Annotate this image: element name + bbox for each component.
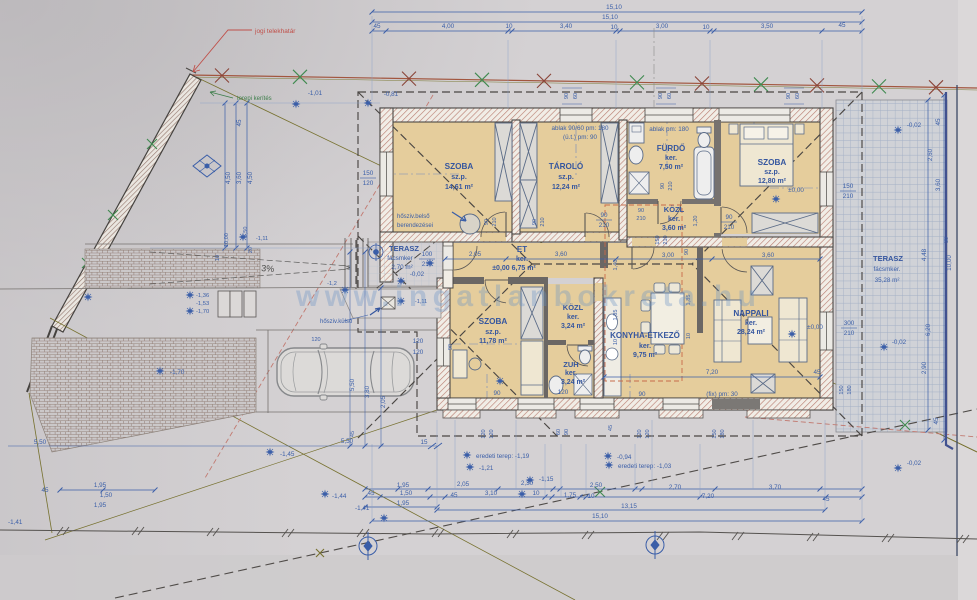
svg-text:(fix) pm: 30: (fix) pm: 30 — [706, 391, 738, 398]
svg-text:180: 180 — [847, 385, 853, 394]
svg-text:90: 90 — [725, 214, 733, 221]
svg-text:12,24 m²: 12,24 m² — [552, 184, 581, 191]
svg-text:10: 10 — [613, 339, 619, 345]
svg-text:15,10: 15,10 — [602, 14, 618, 21]
svg-text:28,24 m²: 28,24 m² — [737, 329, 766, 336]
svg-text:SZOBA: SZOBA — [479, 317, 508, 326]
svg-text:10: 10 — [686, 333, 692, 339]
svg-text:TERASZ: TERASZ — [389, 244, 419, 253]
svg-text:sz.p.: sz.p. — [451, 174, 467, 181]
svg-text:2,70 m²: 2,70 m² — [391, 264, 412, 271]
svg-text:sz.p.: sz.p. — [485, 329, 501, 336]
svg-text:ker.: ker. — [516, 256, 528, 263]
svg-text:2,70: 2,70 — [669, 484, 682, 491]
svg-text:150: 150 — [712, 429, 718, 438]
svg-text:1,50: 1,50 — [400, 490, 413, 497]
svg-text:210: 210 — [724, 224, 735, 231]
svg-text:2,05: 2,05 — [380, 395, 387, 408]
svg-text:120: 120 — [413, 338, 424, 345]
svg-text:90: 90 — [600, 212, 608, 219]
svg-text:ker.: ker. — [745, 320, 757, 327]
svg-text:SZOBA: SZOBA — [758, 158, 787, 167]
svg-text:150: 150 — [843, 183, 854, 190]
svg-text:3,10: 3,10 — [485, 490, 498, 497]
svg-text:berendezései: berendezései — [397, 223, 433, 229]
svg-text:150: 150 — [363, 170, 374, 177]
svg-text:ker.: ker. — [639, 343, 651, 350]
svg-text:2,30: 2,30 — [521, 480, 534, 487]
svg-text:hősziv.belső: hősziv.belső — [397, 214, 430, 220]
svg-text:1,20: 1,20 — [693, 216, 699, 227]
svg-text:180: 180 — [720, 429, 726, 438]
svg-text:-1,11: -1,11 — [256, 236, 268, 242]
svg-text:210: 210 — [843, 193, 854, 200]
svg-text:FÜRDŐ: FÜRDŐ — [657, 144, 685, 153]
svg-text:2,05: 2,05 — [457, 481, 470, 488]
svg-text:3,24 m²: 3,24 m² — [561, 323, 586, 330]
svg-text:120: 120 — [489, 429, 495, 438]
svg-text:90: 90 — [484, 219, 490, 225]
svg-text:120: 120 — [363, 180, 374, 187]
svg-text:4,50: 4,50 — [247, 171, 254, 184]
svg-text:3%: 3% — [261, 263, 275, 274]
svg-text:-0,81: -0,81 — [384, 91, 399, 98]
svg-text:-1,15: -1,15 — [539, 476, 554, 483]
svg-text:-0,02: -0,02 — [410, 271, 425, 278]
svg-text:ET: ET — [517, 245, 527, 254]
svg-text:-1,01: -1,01 — [308, 90, 323, 97]
svg-text:terepi kerítés: terepi kerítés — [237, 96, 272, 102]
svg-text:300: 300 — [844, 320, 855, 327]
svg-text:10,00: 10,00 — [224, 233, 230, 247]
svg-text:4,50: 4,50 — [225, 171, 232, 184]
svg-text:1,40: 1,40 — [613, 260, 619, 271]
svg-text:120: 120 — [558, 389, 569, 396]
svg-text:3,24 m²: 3,24 m² — [561, 379, 586, 386]
svg-text:120: 120 — [645, 429, 651, 438]
svg-text:45: 45 — [41, 487, 49, 494]
svg-text:90: 90 — [448, 344, 454, 350]
svg-text:KÖZL: KÖZL — [664, 205, 685, 214]
svg-text:-1,70: -1,70 — [170, 369, 185, 376]
svg-text:5,50: 5,50 — [341, 438, 354, 445]
svg-text:45: 45 — [236, 119, 243, 127]
svg-text:150: 150 — [839, 385, 845, 394]
svg-text:9,75 m²: 9,75 m² — [633, 352, 658, 359]
svg-text:45: 45 — [367, 490, 375, 497]
svg-text:-1,36: -1,36 — [196, 293, 209, 299]
svg-text:10: 10 — [532, 490, 540, 497]
svg-text:210: 210 — [663, 235, 669, 244]
svg-text:45: 45 — [933, 417, 940, 425]
svg-text:3,40: 3,40 — [560, 23, 573, 30]
svg-text:eredeti terep: -1,03: eredeti terep: -1,03 — [618, 463, 672, 470]
svg-text:1,50: 1,50 — [100, 492, 113, 499]
svg-text:15,10: 15,10 — [592, 513, 608, 520]
svg-text:-1,21: -1,21 — [479, 465, 494, 472]
svg-text:TÁROLÓ: TÁROLÓ — [549, 160, 584, 171]
svg-text:45: 45 — [350, 431, 356, 437]
svg-text:13,15: 13,15 — [621, 503, 637, 510]
svg-text:-1,70: -1,70 — [196, 309, 209, 315]
svg-text:-0,02: -0,02 — [907, 460, 922, 467]
svg-text:120: 120 — [311, 337, 320, 343]
svg-text:ker.: ker. — [565, 370, 577, 377]
svg-text:90: 90 — [532, 219, 538, 225]
svg-text:90: 90 — [638, 208, 644, 214]
svg-text:210: 210 — [599, 222, 610, 229]
svg-text:2,60: 2,60 — [927, 148, 934, 161]
svg-text:45: 45 — [838, 22, 846, 29]
svg-text:-1,45: -1,45 — [280, 451, 295, 458]
svg-text:45: 45 — [822, 496, 830, 503]
svg-text:4,00: 4,00 — [442, 23, 455, 30]
svg-text:45: 45 — [373, 23, 381, 30]
svg-text:90: 90 — [493, 390, 501, 397]
svg-text:90: 90 — [786, 93, 792, 99]
svg-text:45: 45 — [935, 118, 942, 126]
svg-text:210: 210 — [636, 216, 645, 222]
svg-text:60: 60 — [556, 429, 562, 435]
svg-text:KONYHA-ÉTKEZŐ: KONYHA-ÉTKEZŐ — [610, 331, 680, 340]
svg-text:3,60: 3,60 — [762, 252, 775, 259]
svg-text:3,50: 3,50 — [761, 23, 774, 30]
svg-text:35,28 m²: 35,28 m² — [875, 277, 900, 284]
svg-text:-1,41: -1,41 — [8, 519, 23, 526]
svg-text:±0,00: ±0,00 — [788, 187, 804, 194]
svg-text:eredeti terep: -1,19: eredeti terep: -1,19 — [476, 453, 530, 460]
svg-text:3,00: 3,00 — [662, 252, 675, 259]
svg-text:100: 100 — [422, 251, 433, 258]
svg-text:2,50: 2,50 — [590, 482, 603, 489]
svg-text:7,20: 7,20 — [706, 369, 719, 376]
svg-text:sz.p.: sz.p. — [764, 169, 780, 176]
svg-text:60: 60 — [573, 93, 579, 99]
svg-text:7,20: 7,20 — [702, 493, 715, 500]
svg-text:3,80: 3,80 — [364, 385, 371, 398]
svg-text:150: 150 — [655, 235, 661, 244]
svg-text:60: 60 — [795, 93, 801, 99]
svg-text:1,95: 1,95 — [397, 482, 410, 489]
svg-text:2,05: 2,05 — [469, 251, 482, 258]
svg-text:-0,02: -0,02 — [892, 339, 907, 346]
svg-text:sz.p.: sz.p. — [558, 174, 574, 181]
svg-text:3,70: 3,70 — [769, 484, 782, 491]
svg-text:±0,00 6,75 m²: ±0,00 6,75 m² — [492, 265, 536, 272]
svg-text:fácsmker.: fácsmker. — [874, 266, 901, 273]
svg-text:10: 10 — [505, 23, 513, 30]
svg-text:90: 90 — [660, 183, 666, 189]
svg-text:TERASZ: TERASZ — [873, 254, 903, 263]
svg-text:3,60: 3,60 — [236, 171, 243, 184]
svg-text:ZUH: ZUH — [563, 360, 578, 369]
svg-text:90: 90 — [684, 249, 690, 255]
svg-text:120: 120 — [637, 429, 643, 438]
svg-text:10: 10 — [587, 493, 595, 500]
svg-text:-1,44: -1,44 — [332, 493, 347, 500]
svg-text:-0,02: -0,02 — [907, 122, 922, 129]
svg-text:10,00: 10,00 — [946, 255, 953, 271]
svg-text:7,50 m²: 7,50 m² — [659, 164, 684, 171]
svg-text:14,61 m²: 14,61 m² — [445, 184, 474, 191]
svg-text:3,60 m²: 3,60 m² — [662, 225, 687, 232]
svg-text:±0,00: ±0,00 — [807, 324, 823, 331]
svg-text:-1,41: -1,41 — [355, 505, 370, 512]
svg-text:15: 15 — [420, 439, 428, 446]
svg-text:(ü.t.) pm: 90: (ü.t.) pm: 90 — [563, 134, 597, 141]
svg-text:1,95: 1,95 — [94, 502, 107, 509]
svg-text:15,10: 15,10 — [606, 4, 622, 11]
svg-text:210: 210 — [668, 181, 674, 190]
svg-text:45: 45 — [450, 492, 458, 499]
svg-text:2,90: 2,90 — [921, 361, 928, 374]
svg-text:1,95: 1,95 — [397, 500, 410, 507]
svg-text:6,20: 6,20 — [925, 323, 932, 336]
svg-text:12,80 m²: 12,80 m² — [758, 178, 787, 185]
svg-text:5,50: 5,50 — [34, 439, 47, 446]
svg-text:SZOBA: SZOBA — [445, 162, 474, 171]
svg-text:30: 30 — [944, 237, 950, 243]
svg-text:210: 210 — [844, 330, 855, 337]
svg-text:ablak 90/60 pm: 180: ablak 90/60 pm: 180 — [551, 125, 609, 132]
svg-text:ablak pm: 180: ablak pm: 180 — [649, 126, 689, 133]
svg-text:-1,53: -1,53 — [196, 301, 209, 307]
svg-text:10: 10 — [702, 24, 710, 31]
svg-text:45: 45 — [813, 369, 821, 376]
svg-text:3,60: 3,60 — [935, 178, 942, 191]
svg-text:45: 45 — [608, 425, 614, 431]
svg-text:120: 120 — [481, 429, 487, 438]
svg-text:ker.: ker. — [668, 216, 680, 223]
svg-text:3,60: 3,60 — [555, 251, 568, 258]
svg-text:11,78 m²: 11,78 m² — [479, 338, 507, 345]
svg-text:1,75: 1,75 — [564, 492, 577, 499]
svg-text:1,95: 1,95 — [94, 482, 107, 489]
svg-text:90: 90 — [658, 93, 664, 99]
svg-text:5,50: 5,50 — [349, 378, 356, 391]
svg-text:fácsmker: fácsmker — [387, 255, 413, 262]
svg-text:4,48: 4,48 — [921, 248, 928, 261]
svg-text:90: 90 — [638, 391, 646, 398]
svg-text:-0,94: -0,94 — [617, 454, 632, 461]
svg-text:jogi telekhatár: jogi telekhatár — [254, 28, 296, 35]
svg-text:120: 120 — [413, 349, 424, 356]
svg-text:210: 210 — [492, 217, 498, 226]
svg-text:ker.: ker. — [665, 155, 677, 162]
svg-text:90: 90 — [564, 93, 570, 99]
svg-text:90: 90 — [564, 429, 570, 435]
svg-text:60: 60 — [667, 93, 673, 99]
svg-text:210: 210 — [540, 217, 546, 226]
svg-text:3,00: 3,00 — [656, 23, 669, 30]
svg-text:ker.: ker. — [567, 314, 579, 321]
svg-text:10: 10 — [215, 255, 221, 261]
svg-text:10: 10 — [610, 24, 618, 31]
